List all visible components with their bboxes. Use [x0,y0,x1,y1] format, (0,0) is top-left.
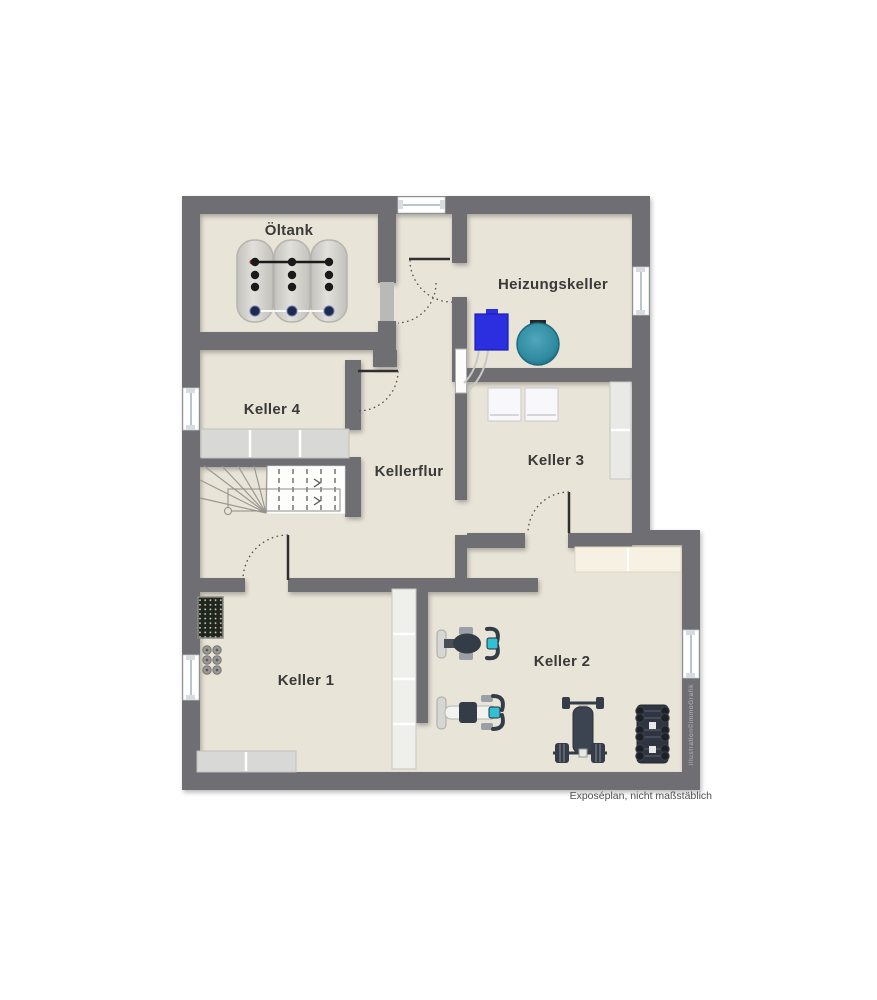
window-keller1-icon [183,655,199,700]
wall-bottom [182,772,700,790]
window-right-upper-icon [633,267,649,315]
room-label-oeltank: Öltank [265,222,314,239]
room-label-keller1: Keller 1 [278,672,335,689]
floorplan-page: Öltank Heizungskeller Keller 4 Kellerflu… [0,0,877,1000]
floorplan-canvas: Öltank Heizungskeller Keller 4 Kellerflu… [0,0,877,1000]
shelf-keller1-right-column [392,589,416,769]
wall-left [182,196,200,790]
shelf-keller4-row [201,429,349,458]
wall-kellerflur-bottom-left [182,578,245,592]
flue-block [380,282,394,321]
window-top-icon [398,197,445,213]
room-label-kellerflur: Kellerflur [375,463,444,480]
window-keller2-icon [683,630,699,678]
room-label-heizungskeller: Heizungskeller [498,276,608,293]
room-label-keller2: Keller 2 [534,653,591,670]
wall-kellerflur-right-upper [455,382,467,500]
plan-caption: Exposéplan, nicht maßstäblich [570,790,713,802]
room-label-keller4: Keller 4 [244,401,301,418]
shelf-keller3-right [610,382,631,479]
shelf-keller1-bottom [197,751,296,772]
wall-keller3-bottom-left [467,533,525,548]
wall-oeltank-bottom [182,332,396,350]
dumbbell-rack-icon [636,705,669,763]
shelf-keller2-top [575,547,681,572]
wall-oeltank-right-top [378,214,396,283]
window-keller4-icon [183,388,199,430]
watermark-text: illustration©immoGrafik [687,684,695,765]
door-panel-heizung [456,349,467,393]
wine-rack-icon [198,597,223,638]
wall-chunk-keller4-door [373,350,397,367]
room-label-keller3: Keller 3 [528,452,585,469]
wall-heizung-left-top [452,214,467,263]
wall-keller1-keller2-divider [415,592,428,723]
oil-tanks-icon [237,240,347,322]
wall-heizung-bottom [452,368,650,382]
wall-keller3-bottom-right [568,533,632,548]
